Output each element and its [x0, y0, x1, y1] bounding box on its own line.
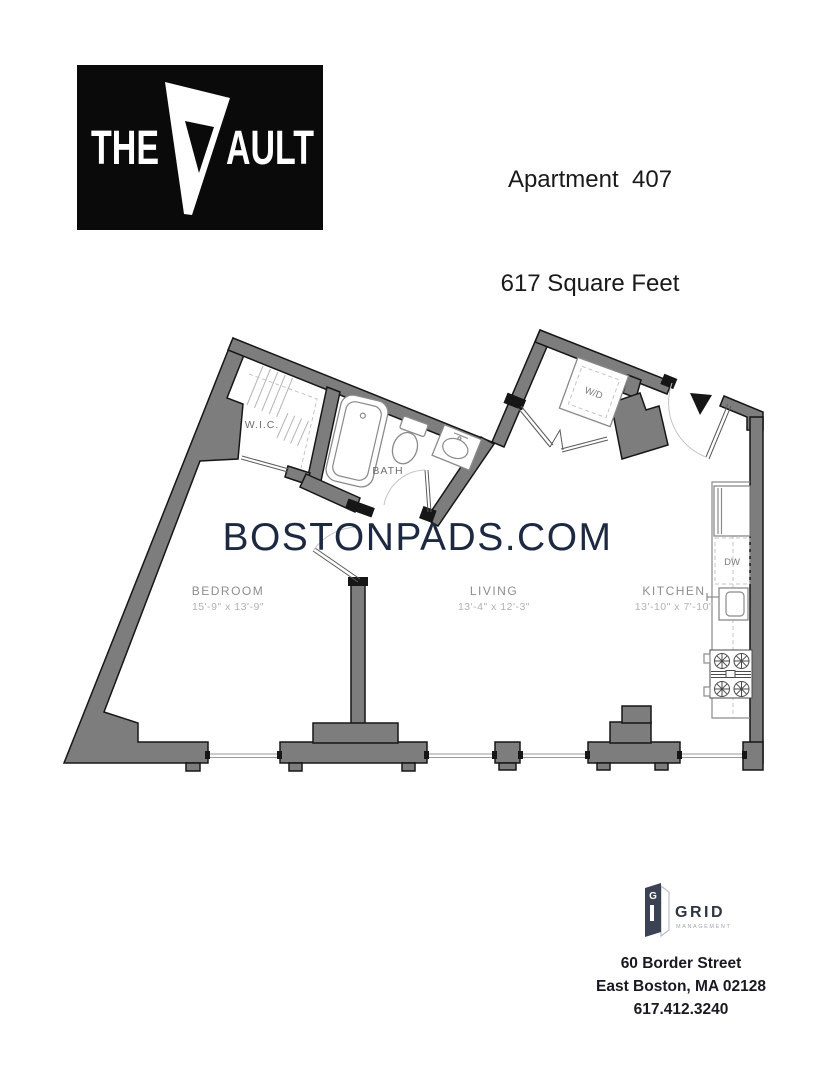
- pier: [597, 763, 610, 770]
- living-label: LIVING: [470, 584, 518, 598]
- apartment-info: Apartment 407 617 Square Feet: [455, 110, 725, 326]
- pier: [186, 763, 200, 771]
- wic-door: [241, 456, 289, 472]
- pier: [655, 763, 668, 770]
- floorplan-flyer: { "logo": { "word_the": "THE", "letter_v…: [0, 0, 835, 1080]
- grid-brand: GRID: [675, 904, 725, 921]
- address-line2: East Boston, MA 02128: [586, 975, 776, 998]
- bottom-wall-segment-3: [495, 742, 520, 763]
- square-feet: 617 Square Feet: [455, 270, 725, 298]
- bottom-wall-segment-2: [280, 742, 427, 763]
- kitchen-dims: 13'-10" x 7'-10": [635, 601, 713, 613]
- grid-management-logo: G GRID MANAGEMENT: [633, 880, 743, 947]
- wic-label: W.I.C.: [245, 419, 280, 431]
- contact-block: 60 Border Street East Boston, MA 02128 6…: [586, 952, 776, 1021]
- logo-word-the: THE: [91, 122, 159, 175]
- grid-logo-graphic: G GRID MANAGEMENT: [633, 880, 743, 942]
- vault-logo: THE AULT: [77, 65, 323, 230]
- grid-tower-slot: [650, 905, 654, 921]
- grid-initial: G: [649, 891, 657, 902]
- bath-label: BATH: [372, 465, 403, 477]
- logo-word-ault: AULT: [226, 122, 314, 175]
- phone-number: 617.412.3240: [586, 998, 776, 1021]
- bottom-wall-segment-4: [588, 742, 680, 763]
- kitchen-label: KITCHEN: [642, 584, 705, 598]
- address-line1: 60 Border Street: [586, 952, 776, 975]
- grid-tower-back: [661, 886, 669, 936]
- pier: [499, 763, 516, 770]
- column-bump: [610, 722, 651, 743]
- partition-base: [313, 723, 398, 743]
- grid-brand-sub: MANAGEMENT: [676, 924, 731, 930]
- bedroom-label: BEDROOM: [192, 584, 265, 598]
- watermark: BOSTONPADS.COM: [0, 516, 835, 560]
- column-bump-top: [622, 706, 651, 723]
- stove-icon: [704, 650, 752, 698]
- living-dims: 13'-4" x 12'-3": [458, 601, 530, 613]
- hall-left-jamb: [345, 499, 375, 518]
- right-wall: [750, 417, 763, 763]
- toilet-icon: [388, 416, 428, 468]
- entry-wall-chunk: [611, 393, 668, 459]
- pier: [402, 763, 415, 771]
- bedroom-dims: 15'-9" x 13'-9": [192, 601, 264, 613]
- apartment-number: Apartment 407: [455, 166, 725, 194]
- vault-logo-graphic: THE AULT: [77, 65, 323, 230]
- bedroom-living-partition: [351, 585, 365, 725]
- entry-arrow-icon: [690, 393, 712, 415]
- wd-closet-left-wall: [492, 330, 552, 447]
- pier: [289, 763, 302, 771]
